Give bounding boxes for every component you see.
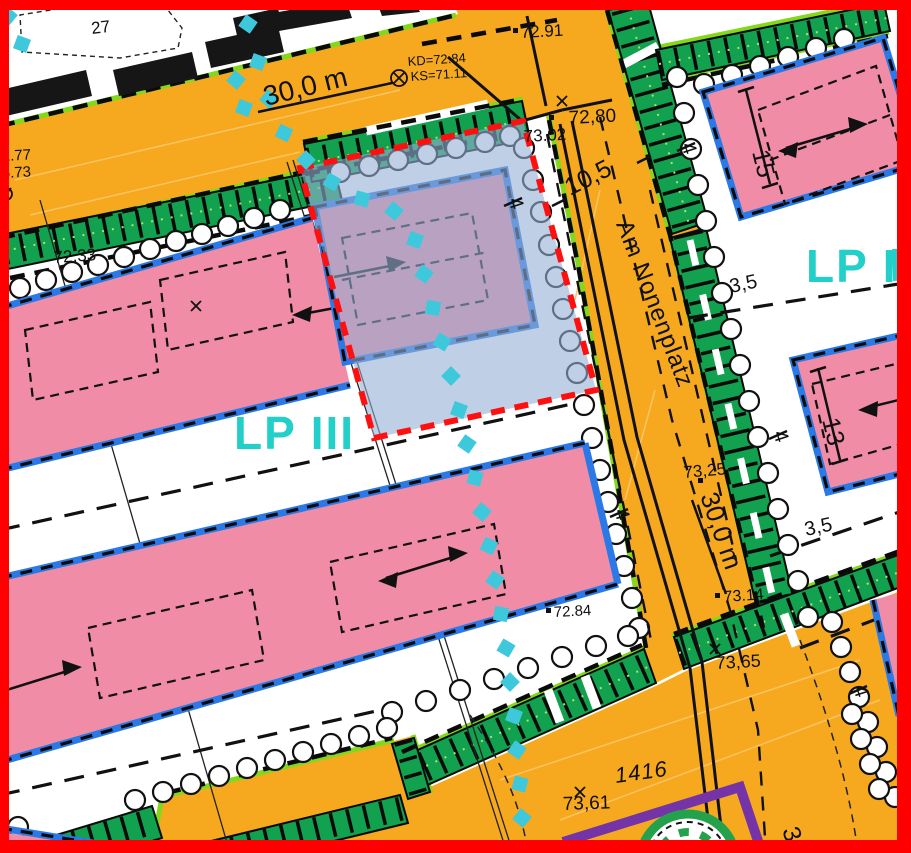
label-elev-72-33: 72,33 xyxy=(53,245,97,267)
label-parcel-27: 27 xyxy=(90,17,111,38)
frame-right xyxy=(897,0,911,853)
label-elev-73-02: 73.02 xyxy=(523,125,566,146)
frame-top xyxy=(0,0,911,10)
frame-left xyxy=(0,0,9,853)
label-elev-72-80: 72,80 xyxy=(568,106,617,129)
frame-bottom xyxy=(0,840,911,853)
label-elev-73-14: 73.14 xyxy=(723,586,764,606)
zoning-map-canvas: 27 30,0 m KD=72.84 KS=71.11 72.91 72,80 … xyxy=(0,0,911,853)
label-elev-72-91: 72.91 xyxy=(520,21,563,42)
label-elev-73-65: 73,65 xyxy=(715,651,761,673)
label-elev-72-84: 72.84 xyxy=(553,602,591,621)
label-elev-73-61: 73,61 xyxy=(562,792,610,815)
label-zone-lp1: LP I xyxy=(806,240,898,292)
label-zone-lp3: LP III xyxy=(234,407,355,459)
label-elev-73-25: 73,25 xyxy=(683,459,727,482)
